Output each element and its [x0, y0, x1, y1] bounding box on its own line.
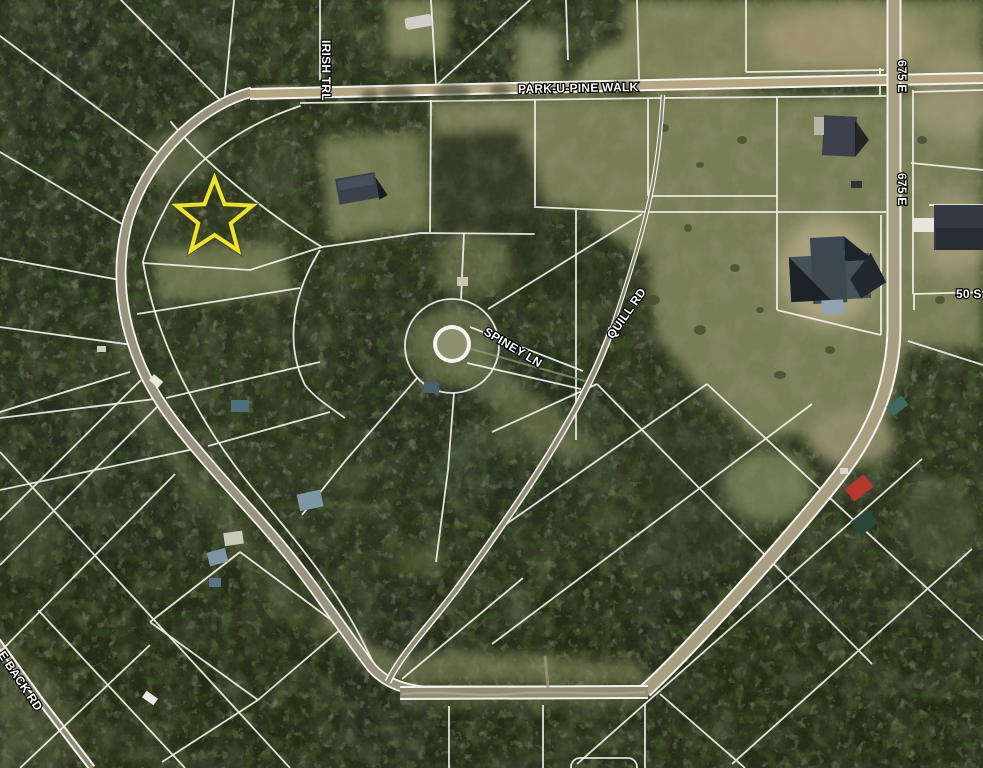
svg-text:675 E: 675 E [895, 60, 909, 93]
svg-text:PARK-U-PINE WALK: PARK-U-PINE WALK [518, 80, 639, 96]
svg-text:675 E: 675 E [895, 173, 909, 206]
svg-text:50 S: 50 S [956, 287, 982, 301]
svg-text:IRISH TRL: IRISH TRL [319, 40, 333, 101]
